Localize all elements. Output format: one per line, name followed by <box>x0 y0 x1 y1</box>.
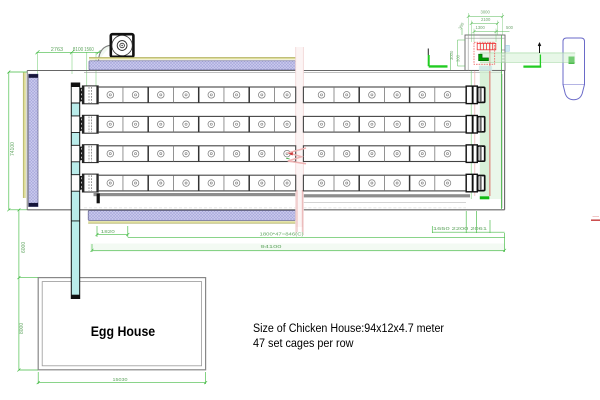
svg-text:1650 2200 2061: 1650 2200 2061 <box>433 226 488 231</box>
svg-text:8000: 8000 <box>19 323 25 334</box>
svg-text:8100: 8100 <box>73 47 84 53</box>
svg-text:1800*47=846(C): 1800*47=846(C) <box>260 232 304 238</box>
svg-text:1560: 1560 <box>84 47 94 53</box>
svg-text:1300: 1300 <box>476 25 486 30</box>
svg-text:2763: 2763 <box>51 47 63 53</box>
svg-text:94100: 94100 <box>261 244 283 250</box>
svg-text:6000: 6000 <box>21 242 27 253</box>
svg-text:15030: 15030 <box>113 377 128 383</box>
svg-text:3000: 3000 <box>449 50 454 60</box>
svg-text:Size of Chicken House:94x12x4.: Size of Chicken House:94x12x4.7 meter <box>253 321 444 335</box>
svg-text:300: 300 <box>457 21 465 30</box>
svg-text:3000: 3000 <box>481 10 491 15</box>
svg-text:500: 500 <box>506 25 514 30</box>
svg-text:1820: 1820 <box>101 229 115 235</box>
svg-text:2100: 2100 <box>481 17 491 22</box>
svg-text:Egg House: Egg House <box>91 324 156 340</box>
svg-text:74100: 74100 <box>10 142 16 156</box>
svg-text:47 set cages per row: 47 set cages per row <box>253 336 354 350</box>
svg-text:300: 300 <box>456 54 461 62</box>
